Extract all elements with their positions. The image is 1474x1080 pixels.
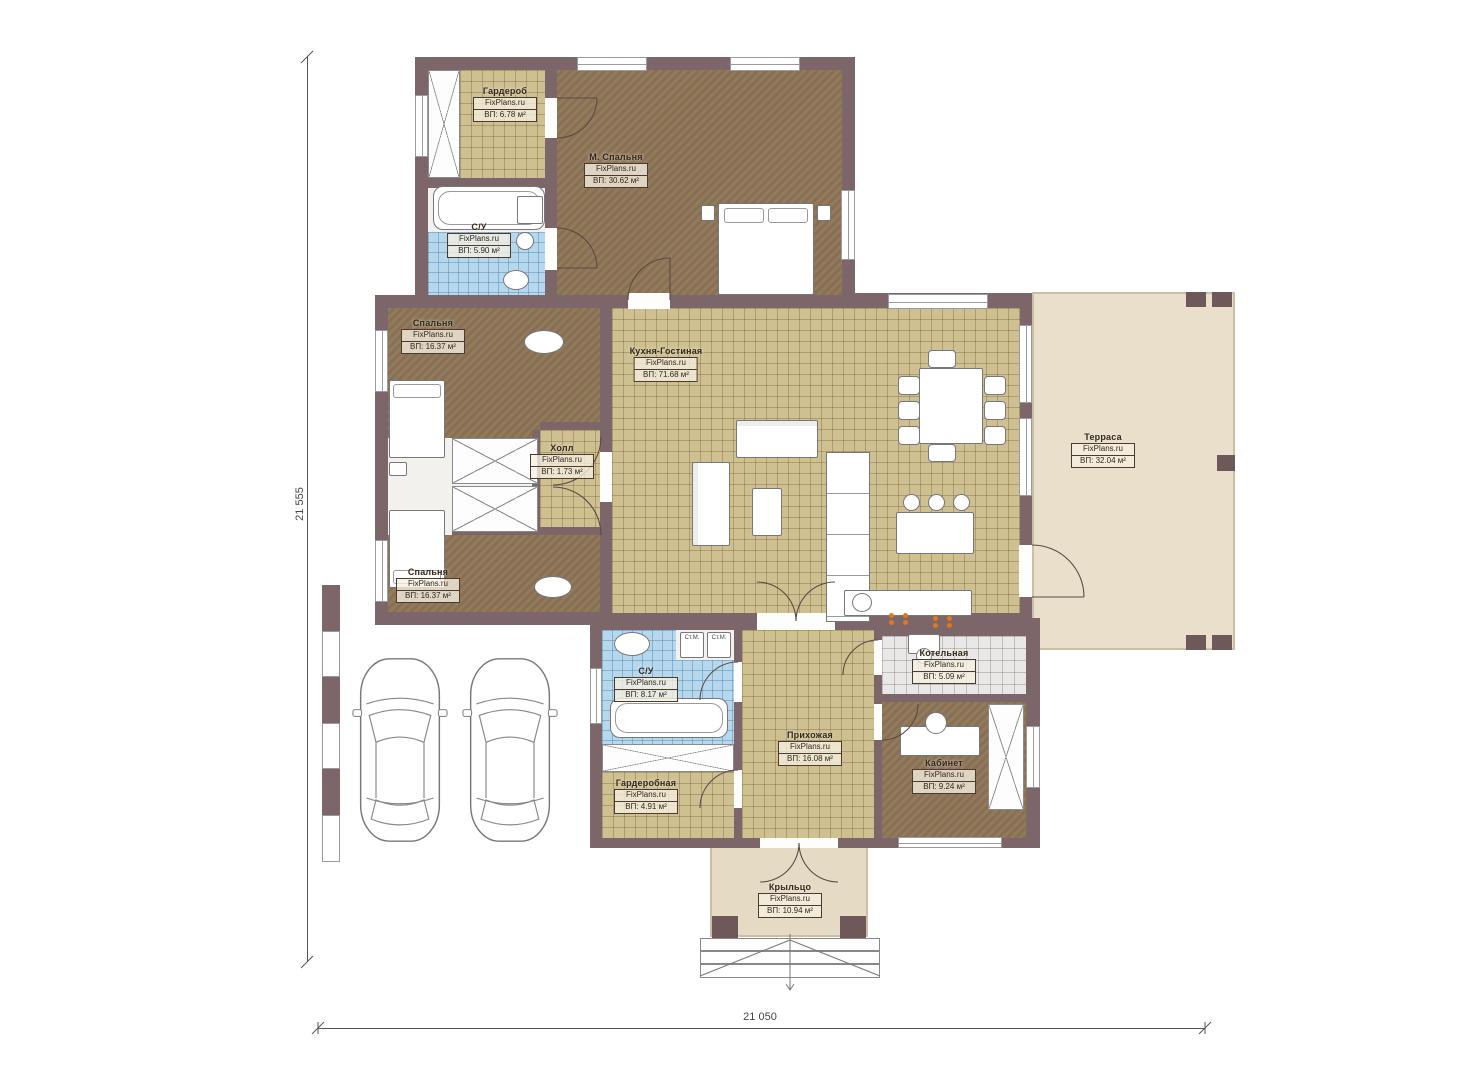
bar-stool (928, 494, 945, 511)
washer-label: Ст.М. (708, 633, 730, 642)
site-marker-segment (322, 723, 340, 769)
terrace-floor (1032, 292, 1235, 650)
pillow (393, 384, 441, 398)
wardrobe-cabinet (452, 438, 538, 484)
dining-chair (984, 426, 1006, 445)
washer-label: Ст.М. (681, 633, 703, 642)
window (375, 330, 388, 392)
sofa (736, 420, 818, 458)
dining-table (919, 368, 983, 444)
dining-chair (984, 401, 1006, 420)
chair (534, 576, 572, 598)
terrace-post (1186, 635, 1206, 650)
toilet (503, 270, 529, 290)
door-opening (600, 452, 612, 502)
door-opening (1019, 545, 1032, 597)
pillow (724, 208, 764, 223)
room-floor-garderobnaya (602, 772, 734, 838)
door-opening (734, 770, 742, 808)
window (415, 95, 428, 157)
terrace-post (1217, 455, 1235, 471)
wall-strip (882, 694, 1026, 702)
room-floor-kotelnaya (882, 636, 1026, 694)
car (352, 652, 448, 853)
window (841, 190, 855, 260)
wardrobe-cabinet (602, 744, 734, 772)
dimension-line-left (307, 57, 308, 962)
porch-steps (700, 964, 880, 978)
window (577, 57, 647, 71)
sink (516, 232, 534, 250)
wall-strip (540, 422, 600, 430)
porch-steps (700, 938, 880, 951)
wardrobe-cabinet (452, 486, 538, 532)
kitchen-sink (852, 593, 872, 612)
sofa (692, 462, 730, 546)
coffee-table (752, 488, 782, 536)
wardrobe-cabinet (988, 704, 1024, 810)
dimension-label-left: 21 555 (294, 472, 306, 536)
bar-stool (953, 494, 970, 511)
dining-chair (928, 350, 956, 368)
kitchen-island (896, 512, 974, 554)
window (1019, 418, 1032, 496)
bathtub (610, 698, 728, 738)
stove-burners (884, 612, 912, 626)
room-floor-kitchen-living (612, 308, 1020, 613)
dimension-label-bottom: 21 050 (728, 1011, 792, 1023)
porch-post (712, 916, 738, 938)
door-opening (874, 704, 882, 740)
site-marker-segment (322, 769, 340, 815)
site-marker-segment (322, 585, 340, 631)
door-opening (760, 838, 838, 848)
stove-burners (928, 615, 956, 629)
room-floor-hall (540, 430, 600, 535)
door-opening (545, 98, 557, 138)
nightstand (389, 462, 407, 476)
room-floor-prihozhaya (742, 630, 874, 838)
closet-top (428, 70, 460, 178)
dining-chair (898, 426, 920, 445)
pillow (768, 208, 808, 223)
boiler-drain (916, 648, 932, 664)
terrace-post (1186, 292, 1206, 307)
nightstand (817, 205, 831, 221)
door-opening (757, 613, 835, 630)
window (1019, 325, 1032, 403)
room-floor-garderob (460, 70, 545, 178)
dining-chair (898, 376, 920, 395)
dining-chair (984, 376, 1006, 395)
washing-machine (517, 196, 543, 224)
dimension-line-bottom (318, 1028, 1205, 1029)
washing-machine: Ст.М. (707, 632, 731, 658)
washing-machine: Ст.М. (680, 632, 704, 658)
dining-chair (898, 401, 920, 420)
site-marker-segment (322, 677, 340, 723)
nightstand (701, 205, 715, 221)
terrace-post (1212, 292, 1232, 307)
car (462, 652, 558, 853)
terrace-post (1212, 635, 1232, 650)
window (730, 57, 800, 71)
window (898, 837, 1002, 848)
desk-chair (925, 712, 947, 734)
door-opening (874, 640, 882, 675)
porch-steps (700, 951, 880, 964)
door-opening (734, 662, 742, 702)
door-opening (628, 293, 670, 309)
window (1026, 726, 1040, 788)
porch-post (840, 916, 866, 938)
site-marker-segment (322, 631, 340, 677)
window (590, 668, 602, 724)
door-opening (545, 228, 557, 270)
sink (614, 632, 650, 656)
dining-chair (928, 444, 956, 462)
bar-stool (903, 494, 920, 511)
chair (524, 330, 564, 354)
floor-plan-canvas: 21 555 21 050 (0, 0, 1474, 1080)
window (888, 294, 988, 309)
window (375, 540, 388, 602)
site-marker-segment (322, 815, 340, 862)
pillow (393, 570, 441, 584)
